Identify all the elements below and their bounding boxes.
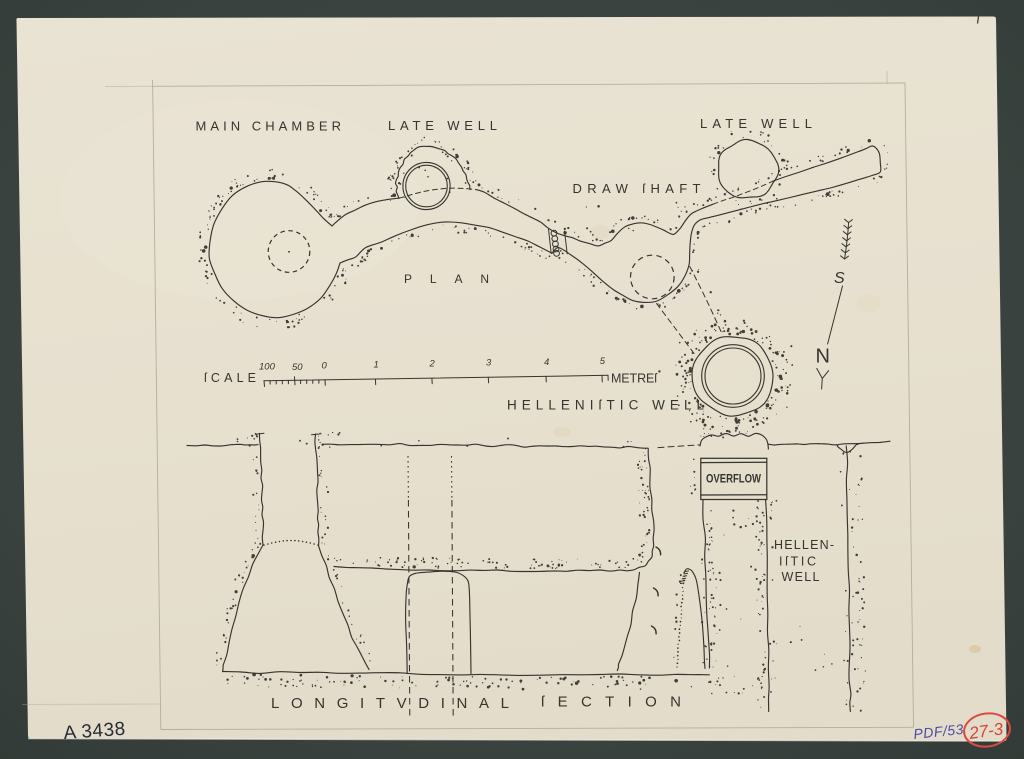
svg-text:IſTIC: IſTIC [779, 555, 816, 569]
svg-text:OVERFLOW: OVERFLOW [706, 474, 761, 486]
svg-text:DRAW ſHAFT: DRAW ſHAFT [573, 181, 701, 196]
svg-text:3: 3 [486, 358, 492, 369]
svg-text:MAIN CHAMBER: MAIN CHAMBER [196, 119, 342, 134]
svg-text:100: 100 [259, 361, 276, 372]
svg-text:HELLEN-: HELLEN- [774, 538, 834, 552]
svg-text:2: 2 [429, 358, 436, 369]
svg-text:4: 4 [544, 357, 549, 368]
svg-text:METREſ: METREſ [611, 372, 658, 386]
svg-text:ſCALE: ſCALE [204, 371, 256, 385]
svg-text:WELL: WELL [782, 570, 820, 584]
svg-text:A 3438: A 3438 [63, 719, 126, 744]
svg-text:N: N [816, 346, 830, 368]
svg-text:50: 50 [292, 362, 303, 373]
svg-text:HELLENIſTIC WELL: HELLENIſTIC WELL [507, 398, 704, 413]
svg-text:S: S [834, 270, 845, 287]
svg-text:5: 5 [600, 356, 606, 367]
svg-text:0: 0 [322, 360, 328, 371]
svg-text:1: 1 [374, 359, 379, 370]
